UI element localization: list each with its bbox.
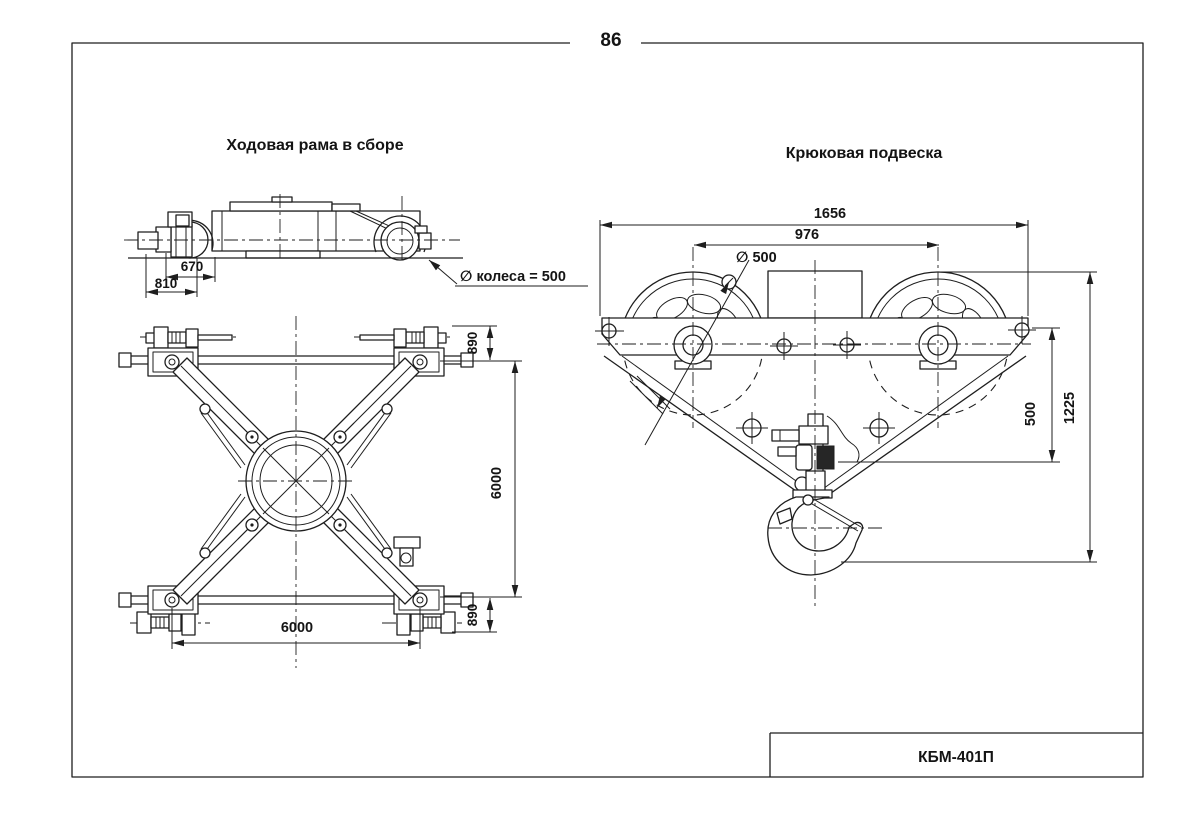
dim-670-label: 670 xyxy=(181,259,204,274)
hook-suspension-drawing: ∅ 500 xyxy=(595,206,1097,608)
page-number: 86 xyxy=(600,30,621,51)
side-view-drawing: ∅ колеса = 500 670 810 xyxy=(124,194,588,298)
dim-810-label: 810 xyxy=(155,276,178,291)
dim-6000-horizontal-label: 6000 xyxy=(281,620,313,636)
side-view-dimensions: 670 810 xyxy=(146,253,215,298)
scanned-manual-page: 86 Ходовая рама в сборе Крюковая подвеск… xyxy=(0,0,1200,834)
dim-1225-label: 1225 xyxy=(1062,392,1078,424)
title-block: КБМ-401П xyxy=(770,733,1143,777)
side-view-title: Ходовая рама в сборе xyxy=(226,137,403,154)
wheel-note-label: ∅ колеса = 500 xyxy=(460,269,566,285)
plan-view-drawing: 890 6000 890 6000 xyxy=(119,316,522,668)
dim-diameter-500-label: ∅ 500 xyxy=(736,250,777,266)
outrigger-screw-bottom-right xyxy=(382,612,462,635)
wheel-diameter-note: ∅ колеса = 500 xyxy=(429,260,588,286)
dim-6000-vertical-label: 6000 xyxy=(489,467,505,499)
outrigger-screw-bottom-left xyxy=(130,612,210,635)
dim-890-bottom-label: 890 xyxy=(465,604,480,627)
swivel-crosshead xyxy=(772,414,859,498)
hook-view-title: Крюковая подвеска xyxy=(786,145,943,162)
outrigger-screw-top-right xyxy=(354,327,452,348)
outrigger-screw-top-left xyxy=(140,327,238,348)
dim-976-label: 976 xyxy=(795,227,819,243)
drawing-canvas: 86 Ходовая рама в сборе Крюковая подвеск… xyxy=(0,0,1200,834)
crane-model-label: КБМ-401П xyxy=(918,749,994,766)
dim-1656-label: 1656 xyxy=(814,206,846,222)
jack-bracket xyxy=(394,537,420,566)
dim-500-label: 500 xyxy=(1023,402,1039,426)
crane-hook xyxy=(768,495,885,575)
dim-890-top-label: 890 xyxy=(465,332,480,355)
hook-view-dimensions: 1656 976 500 1225 xyxy=(600,206,1097,562)
